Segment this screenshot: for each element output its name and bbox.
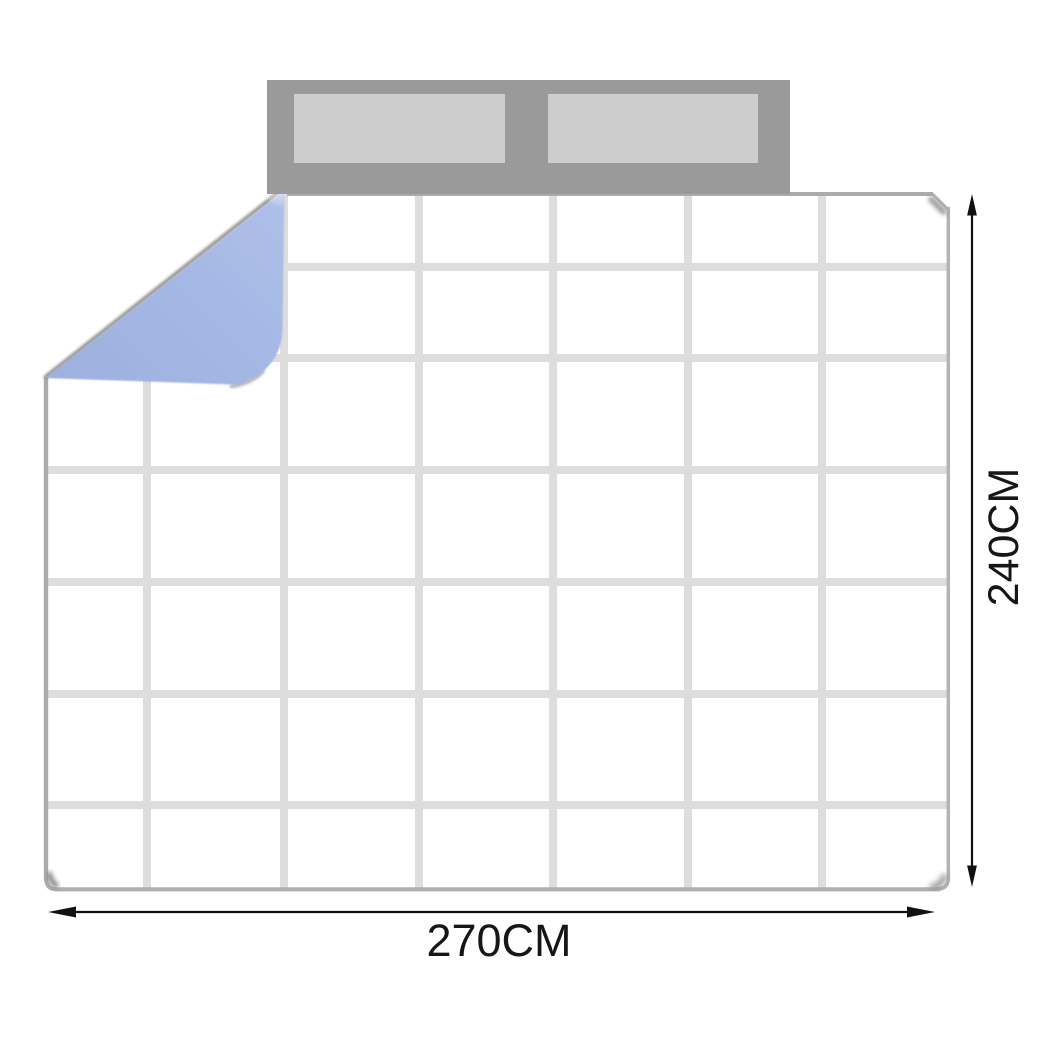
svg-text:270CM: 270CM: [426, 915, 571, 966]
svg-text:240CM: 240CM: [980, 468, 1028, 607]
